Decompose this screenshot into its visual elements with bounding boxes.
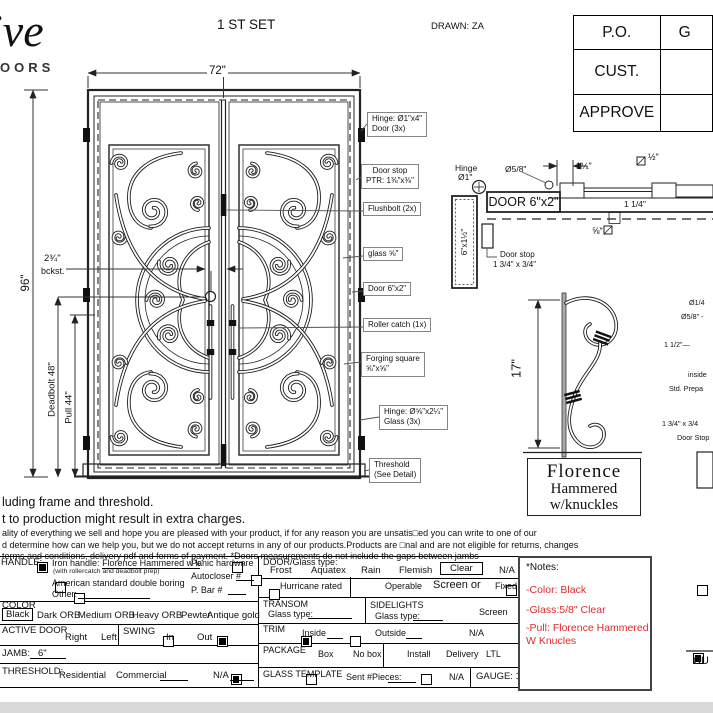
note-glass: -Glass:5/8" Clear xyxy=(526,604,606,616)
side-note-doorstop: Door Stop xyxy=(677,433,709,442)
swing-label: SWING xyxy=(123,626,155,637)
operable-label: Operable xyxy=(385,581,422,591)
pbar-field[interactable] xyxy=(228,585,246,595)
disclaimer-line3: ality of everything we sell and hope you… xyxy=(2,528,537,538)
out-label: Out xyxy=(197,632,212,643)
note-color: -Color: Black xyxy=(526,584,586,596)
side-note-inside: inside xyxy=(688,370,707,379)
jamb-size-label: 6"x1½" xyxy=(459,212,469,272)
package-label: PACKAGE xyxy=(263,645,306,655)
package-divider xyxy=(383,643,384,667)
other-label: Other: xyxy=(52,589,77,599)
glass-option-clear[interactable]: Clear xyxy=(440,562,483,575)
sq58-label: ⅝" xyxy=(592,226,603,236)
approve-label: APPROVE xyxy=(574,95,661,132)
dim-backset-sub: bckst. xyxy=(41,266,65,276)
disclaimer-line1: luding frame and threshold. xyxy=(2,495,153,509)
color-option-black[interactable]: Black xyxy=(2,608,33,621)
disclaimer-line2: t to production might result in extra ch… xyxy=(2,512,245,526)
doorstop-label1: Door stop xyxy=(500,250,535,259)
box-label: Box xyxy=(318,649,334,659)
color-option-dark-orb[interactable]: Dark ORB xyxy=(37,610,80,621)
table-row: P.O. G xyxy=(574,16,713,50)
side-note-134: 1 3/4" x 3/4 xyxy=(662,419,698,428)
no-box-label: No box xyxy=(353,649,382,659)
dim-pull: Pull 44" xyxy=(64,378,75,438)
dim125-label: 1¼" xyxy=(576,161,592,171)
sidelights-label: SIDELIGHTS xyxy=(370,600,424,610)
drawn-by: DRAWN: ZA xyxy=(431,21,484,32)
color-option-antique-gold[interactable]: Antique gold xyxy=(207,610,260,621)
delivery-label: Delivery xyxy=(446,649,479,659)
sidelights-glass-field[interactable] xyxy=(413,611,443,621)
glass-template-label: GLASS TEMPLATE xyxy=(263,669,342,679)
trim-label: TRIM xyxy=(263,624,285,634)
screen-or-label: Screen or xyxy=(433,579,481,591)
color-option-heavy-orb[interactable]: Heavy ORB xyxy=(132,610,182,621)
dim-width: 72" xyxy=(207,65,228,77)
table-row: APPROVE xyxy=(574,95,713,132)
page-bottom-band xyxy=(0,702,713,713)
jamb-label: JAMB: xyxy=(2,648,30,659)
color-option-medium-orb[interactable]: Medium ORB xyxy=(78,610,135,621)
callout-hinge-door: Hinge: Ø1"x4"Door (3x) xyxy=(367,112,427,137)
note-pull: -Pull: Florence Hammered xyxy=(526,622,649,634)
sq-half-label: ½" xyxy=(648,152,659,162)
callout-roller-catch: Roller catch (1x) xyxy=(363,318,431,332)
callout-forging-square: Forging square⅝"x⅝" xyxy=(361,352,425,377)
out-checkbox[interactable] xyxy=(350,636,361,647)
other-field[interactable] xyxy=(78,589,150,599)
transom-glass-field[interactable] xyxy=(308,609,352,619)
side-note-dia14: Ø1/4 xyxy=(689,298,705,307)
transom-divider xyxy=(365,597,366,623)
active-swing-divider xyxy=(118,624,119,645)
outside-field[interactable] xyxy=(406,629,422,639)
logo-script: ive xyxy=(0,4,44,57)
dim-deadbolt: Deadbolt 48" xyxy=(47,350,58,430)
drawing-sheet: ive OORS 1 ST SET DRAWN: ZA P.O. G CUST.… xyxy=(0,0,713,713)
active-door-label: ACTIVE DOOR xyxy=(2,625,67,636)
transom-label: TRANSOM xyxy=(263,599,308,609)
callout-hinge-glass: Hinge: Ø⅝"x2¼"Glass (3x) xyxy=(379,405,448,430)
logo-word: OORS xyxy=(0,60,54,75)
ltl-label: LTL xyxy=(486,649,501,659)
commercial-field[interactable] xyxy=(160,671,188,681)
threshold-na-checkbox[interactable] xyxy=(421,674,432,685)
threshold-na-label: N/A xyxy=(213,670,229,681)
residential-label: Residential xyxy=(59,670,106,681)
side-note-dia58: Ø5/8" - xyxy=(681,312,704,321)
dim-handle-height: 17" xyxy=(509,349,524,389)
cust-label: CUST. xyxy=(574,50,661,95)
iron-handle-checkbox[interactable] xyxy=(37,562,48,573)
inside-field[interactable] xyxy=(327,629,343,639)
callout-door-stop: Door stopPTR: 1⅜"x⅜" xyxy=(361,164,419,189)
trim-na-label: N/A xyxy=(469,628,484,638)
iron-handle-sub-label: (with rollercatch and deadbolt prep) xyxy=(53,568,160,575)
jamb-field[interactable] xyxy=(30,649,66,659)
iron-handle-label: Iron handle: Florence Hammered w k xyxy=(52,558,200,568)
template-na-label: N/A xyxy=(449,672,464,682)
handle-section-label: HANDLE: xyxy=(1,557,42,568)
cust-value[interactable] xyxy=(660,50,712,95)
dim114-label: 1 1/4" xyxy=(622,199,648,209)
gauge-divider xyxy=(470,667,471,687)
install-label: Install xyxy=(407,649,431,659)
screen-or-checkbox[interactable] xyxy=(697,585,708,596)
transom-glass-label: Glass type: xyxy=(268,609,313,619)
callout-flushbolt: Flushbolt (2x) xyxy=(363,202,421,216)
note-pull2: W Knucles xyxy=(526,635,576,647)
po-label: P.O. xyxy=(574,16,661,50)
autocloser-label: Autocloser # xyxy=(191,571,241,581)
glass-option-na[interactable]: N/A xyxy=(499,565,515,576)
notes-title: *Notes: xyxy=(526,562,559,573)
notes-box: *Notes: -Color: Black -Glass:5/8" Clear … xyxy=(518,556,652,691)
right-label: Right xyxy=(65,632,87,643)
screen-label: Screen xyxy=(479,607,508,617)
left-label: Left xyxy=(101,632,117,643)
threshold-label: THRESHOLD: xyxy=(2,666,63,677)
american-boring-label: American standard double boring xyxy=(52,578,185,588)
glass-option-aquatex[interactable]: Aquatex xyxy=(311,565,346,576)
dim-backset: 2¾" xyxy=(44,253,61,264)
side-note-112: 1 1/2"— xyxy=(664,340,690,349)
glass-option-flemish[interactable]: Flemish xyxy=(399,565,432,576)
door-section-label: DOOR 6"x2" xyxy=(487,192,560,212)
autocloser-field[interactable] xyxy=(236,571,254,581)
callout-door-size: Door 6"x2" xyxy=(363,282,411,296)
deadbolt-circle xyxy=(206,292,216,302)
dim-height: 96" xyxy=(20,263,32,303)
left-checkbox[interactable] xyxy=(217,636,228,647)
set-title: 1 ST SET xyxy=(217,17,275,32)
po-value[interactable]: G xyxy=(660,16,712,50)
side-note-std-prep: Std. Prepa xyxy=(669,384,703,393)
hurricane-divider xyxy=(350,577,351,597)
table-row: CUST. xyxy=(574,50,713,95)
panic-label: Panic hardware xyxy=(191,558,254,568)
handle-model-label: Florence Hammered w/knuckles xyxy=(527,458,641,516)
outside-label: Outside xyxy=(375,628,406,638)
approve-value[interactable] xyxy=(660,95,712,132)
hurricane-label: Hurricane rated xyxy=(280,581,342,591)
callout-threshold: Threshold(See Detail) xyxy=(369,458,421,483)
approval-table: P.O. G CUST. APPROVE xyxy=(573,15,713,132)
jamb-section-detail xyxy=(452,157,713,288)
sent-field[interactable] xyxy=(388,673,416,683)
dia58-label: Ø5/8" xyxy=(505,164,526,174)
door-elevation-drawing xyxy=(74,90,374,478)
doorstop-label2: 1 3/4" x 3/4" xyxy=(493,260,536,269)
disclaimer-line4: d determine how can we help you, but we … xyxy=(2,540,578,550)
fixed-label: Fixed xyxy=(495,581,517,591)
glass-option-frost[interactable]: Frost xyxy=(270,565,292,576)
inside-label: Inside xyxy=(302,628,326,638)
pbar-label: P. Bar # xyxy=(191,585,222,595)
glass-option-rain[interactable]: Rain xyxy=(361,565,381,576)
threshold-na-field[interactable] xyxy=(230,671,254,681)
callout-glass: glass ⅝" xyxy=(363,247,403,261)
customer-signature-label: CU xyxy=(693,655,709,667)
hinge-dia-label: Ø1" xyxy=(458,172,472,182)
in-label: In xyxy=(166,632,174,643)
